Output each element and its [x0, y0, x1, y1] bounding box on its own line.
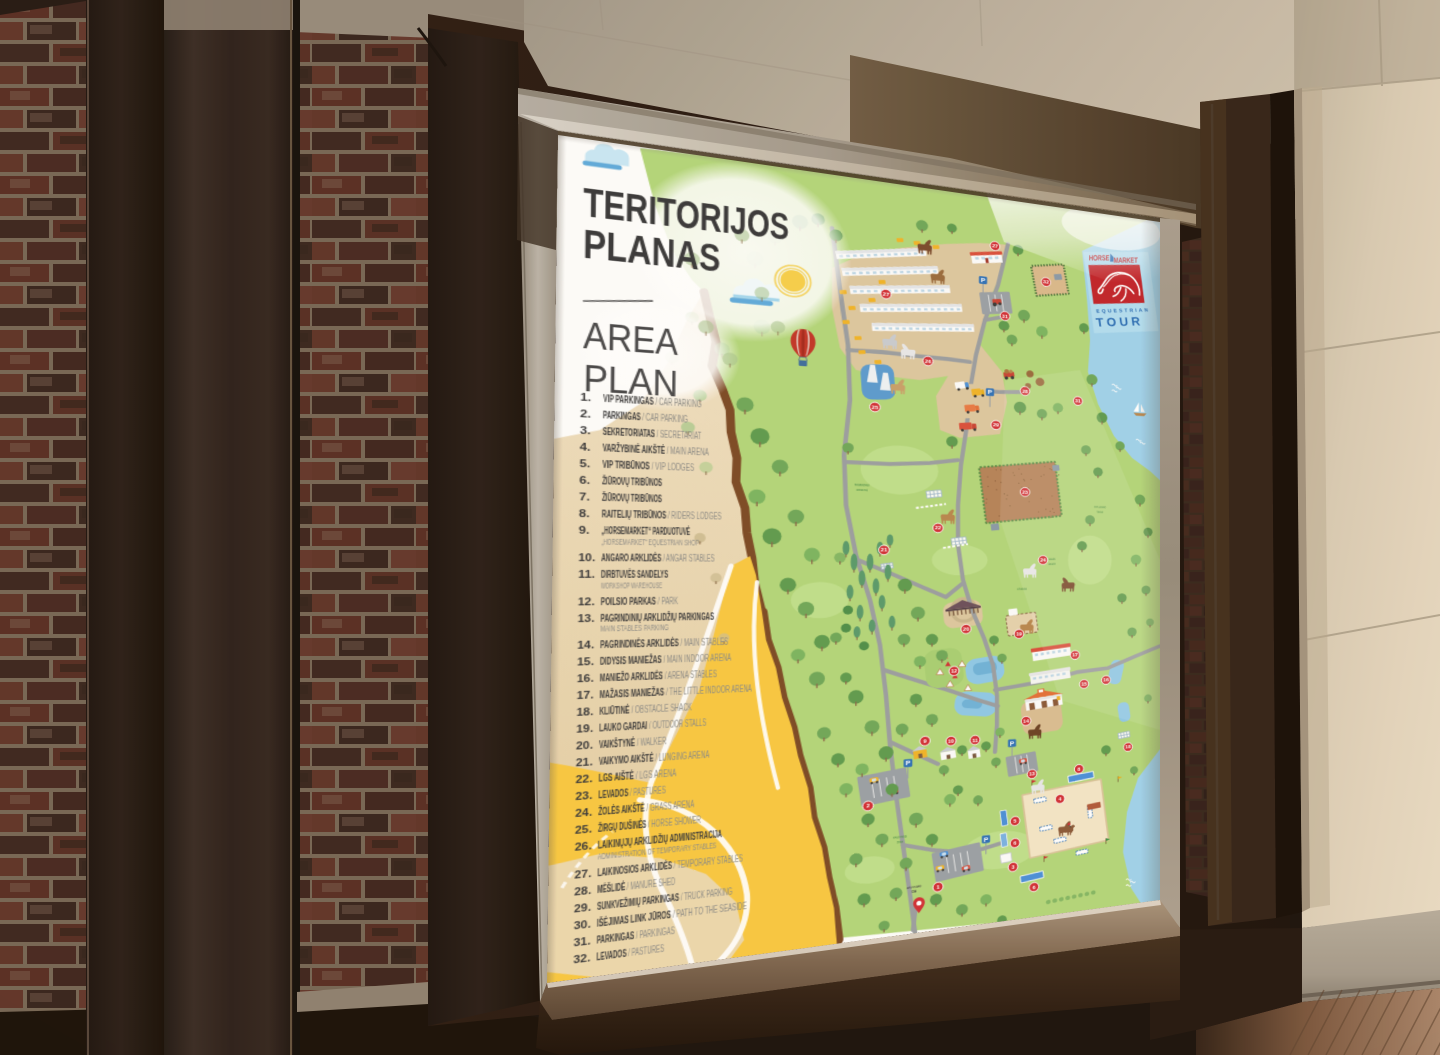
svg-text:22: 22 [935, 525, 941, 531]
svg-text:12: 12 [951, 668, 957, 674]
svg-text:22.: 22. [575, 773, 592, 786]
svg-text:29.: 29. [574, 901, 591, 915]
svg-text:11: 11 [972, 737, 978, 744]
svg-text:23.: 23. [575, 790, 592, 803]
svg-text:27.: 27. [574, 868, 591, 882]
svg-text:16.: 16. [577, 673, 594, 685]
svg-text:ZONA: ZONA [897, 840, 904, 844]
svg-text:14.: 14. [577, 639, 594, 651]
svg-text:ANGARO ARKLIDĖS / ANGAR STABLE: ANGARO ARKLIDĖS / ANGAR STABLES [601, 552, 714, 564]
svg-text:30.: 30. [574, 918, 591, 932]
svg-text:13: 13 [1029, 771, 1035, 778]
svg-text:7.: 7. [579, 491, 590, 503]
svg-text:12.: 12. [578, 595, 595, 607]
svg-text:CIA: CIA [912, 891, 917, 894]
svg-text:18.: 18. [576, 706, 593, 719]
svg-text:MANEZAS: MANEZAS [856, 488, 868, 492]
svg-text:27: 27 [992, 243, 998, 250]
svg-text:19: 19 [1016, 631, 1022, 637]
svg-text:1: 1 [936, 884, 939, 891]
svg-text:26.: 26. [575, 840, 592, 854]
svg-text:2: 2 [866, 803, 869, 810]
svg-text:32.: 32. [573, 952, 590, 966]
svg-text:26: 26 [925, 358, 931, 365]
svg-text:TOUR: TOUR [1095, 314, 1144, 329]
svg-text:29: 29 [993, 422, 999, 428]
svg-text:32: 32 [1043, 279, 1049, 286]
svg-text:1.: 1. [580, 391, 591, 403]
svg-text:25: 25 [872, 404, 879, 411]
svg-text:14: 14 [1023, 718, 1030, 724]
svg-text:20: 20 [963, 626, 969, 632]
svg-text:10: 10 [948, 738, 954, 745]
svg-text:6: 6 [1013, 840, 1016, 846]
svg-text:P: P [1010, 740, 1015, 747]
svg-text:25.: 25. [575, 823, 592, 836]
svg-text:8: 8 [1078, 766, 1081, 772]
svg-text:9.: 9. [579, 524, 590, 536]
svg-text:10.: 10. [578, 551, 595, 563]
svg-text:WORKSHOP WAREHOUSE: WORKSHOP WAREHOUSE [601, 579, 662, 590]
svg-text:P: P [981, 277, 986, 284]
svg-text:POILSIO PARKAS / PARK: POILSIO PARKAS / PARK [601, 595, 679, 607]
svg-text:P: P [988, 389, 993, 396]
svg-text:6.: 6. [579, 474, 590, 486]
svg-text:ŽIŪROVŲ TRIBŪNOS: ŽIŪROVŲ TRIBŪNOS [602, 475, 662, 488]
svg-text:18: 18 [1125, 744, 1130, 750]
svg-text:20.: 20. [576, 739, 593, 752]
svg-text:19.: 19. [576, 723, 593, 736]
svg-text:ŽIŪROVŲ TRIBŪNOS: ŽIŪROVŲ TRIBŪNOS [602, 491, 662, 504]
svg-text:RAITELIŲ TRIBŪNOS / RIDERS LOD: RAITELIŲ TRIBŪNOS / RIDERS LODGES [602, 508, 722, 522]
svg-text:2.: 2. [580, 408, 591, 420]
svg-text:„HORSEMARKET“ EQUESTRIAN SHOP: „HORSEMARKET“ EQUESTRIAN SHOP [601, 536, 699, 548]
svg-text:PAGRINDINIS: PAGRINDINIS [855, 483, 870, 487]
svg-text:24.: 24. [575, 806, 592, 819]
svg-text:28.: 28. [574, 884, 591, 898]
svg-text:31: 31 [1002, 313, 1008, 320]
svg-text:5.: 5. [579, 458, 590, 470]
svg-text:P: P [984, 836, 989, 843]
svg-text:13.: 13. [577, 612, 594, 624]
svg-text:21: 21 [881, 547, 888, 553]
svg-text:5: 5 [1014, 818, 1017, 824]
svg-text:15.: 15. [577, 656, 594, 668]
svg-text:8.: 8. [579, 508, 590, 520]
svg-text:MAIN STABLES PARKING: MAIN STABLES PARKING [600, 622, 668, 634]
svg-text:31.: 31. [573, 935, 590, 949]
svg-text:21.: 21. [576, 756, 593, 769]
svg-text:11.: 11. [578, 568, 595, 580]
svg-text:DIRBTUVĖS SANDELYS: DIRBTUVĖS SANDELYS [601, 568, 668, 580]
svg-text:3: 3 [1012, 864, 1015, 870]
svg-text:17.: 17. [577, 689, 594, 702]
svg-text:27: 27 [883, 291, 890, 298]
svg-text:P: P [906, 760, 911, 767]
svg-text:3.: 3. [580, 424, 591, 436]
svg-text:AREA: AREA [583, 314, 679, 363]
svg-text:4.: 4. [580, 441, 591, 453]
svg-text:9: 9 [923, 738, 926, 745]
svg-text:6: 6 [1033, 884, 1036, 890]
